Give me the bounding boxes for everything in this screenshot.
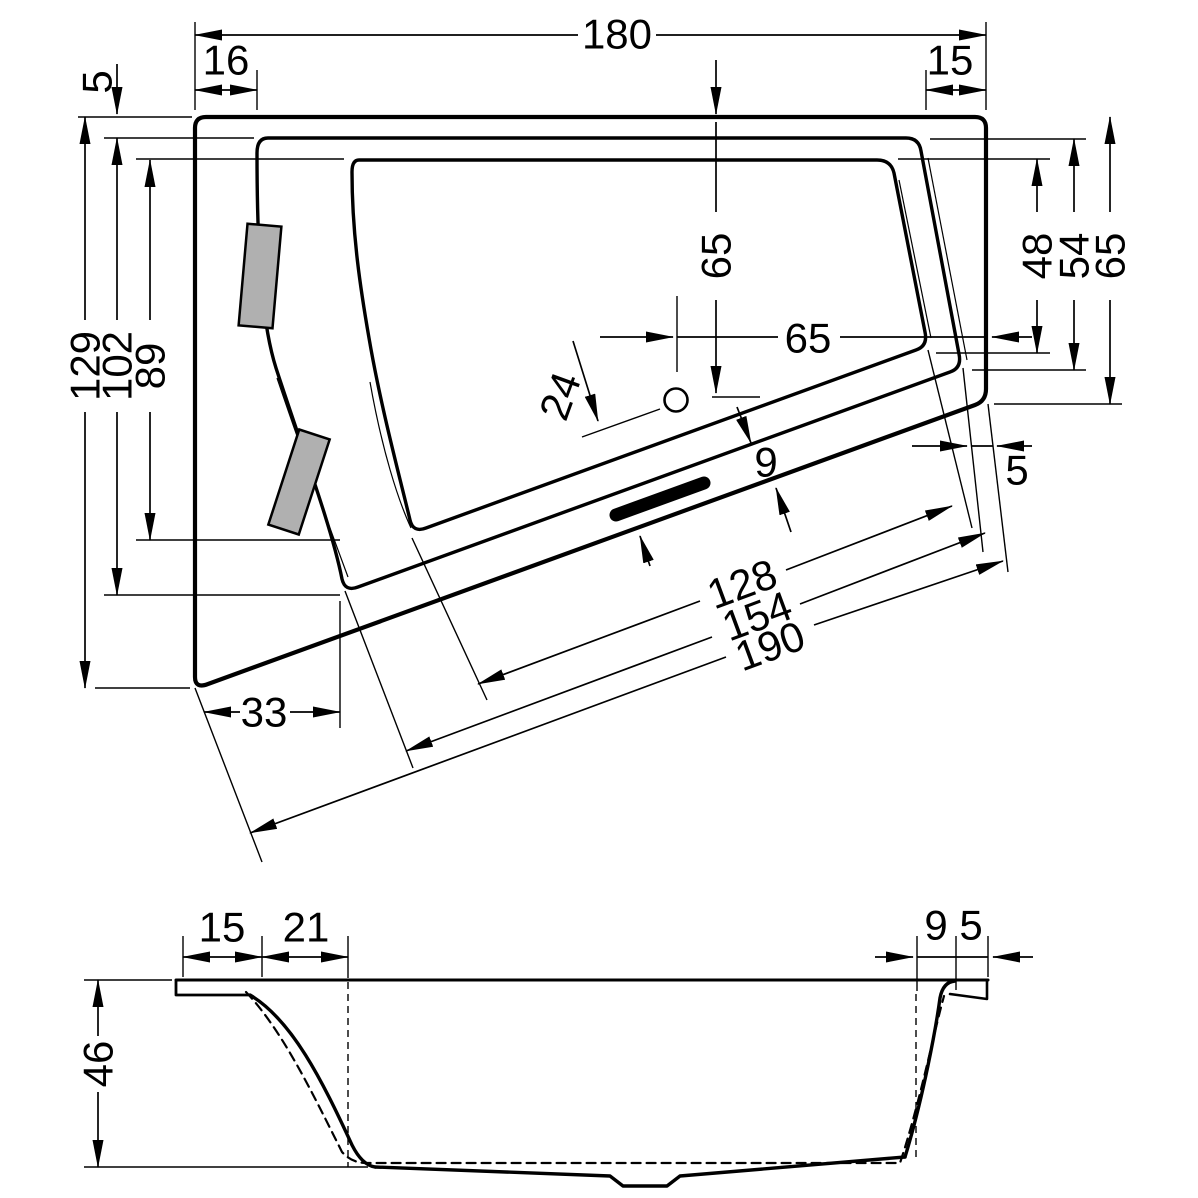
section-left-rim (176, 981, 250, 995)
section-bottom (375, 1157, 905, 1186)
dim-label-section-slope-left: 21 (283, 904, 330, 951)
dim-label-section-rim-right-inner: 9 (924, 902, 947, 949)
plan-extension-lines (78, 22, 1122, 862)
dim-label-drain-from-right: 65 (785, 315, 832, 362)
plan-dimension-labels: 180 16 15 5 129 102 89 65 65 24 48 54 65… (62, 11, 1134, 736)
dim-label-drain-to-front: 24 (530, 366, 590, 426)
dim-label-rim-gap-top-left: 5 (74, 70, 121, 93)
plan-view: 180 16 15 5 129 102 89 65 65 24 48 54 65… (62, 11, 1134, 863)
dim-label-rim-offset-right: 15 (927, 37, 974, 84)
dim-label-section-depth: 46 (75, 1041, 122, 1088)
tub-basin-outline (352, 160, 926, 529)
section-extension-lines (84, 936, 988, 1167)
bathtub-technical-drawing: 180 16 15 5 129 102 89 65 65 24 48 54 65… (0, 0, 1198, 1198)
plan-dimension-lines (85, 35, 1110, 833)
dim-label-rim-offset-left: 16 (203, 37, 250, 84)
dim-label-basin-length: 89 (127, 343, 174, 390)
tub-rim-inner-outline (257, 138, 960, 588)
section-right-wall (905, 981, 955, 1157)
section-dimension-lines (98, 957, 1033, 1167)
dim-label-front-rim-width: 9 (754, 439, 777, 486)
headrest-top (239, 224, 282, 329)
section-profile (176, 980, 988, 1186)
dim-label-section-rim-right-outer: 5 (959, 902, 982, 949)
dim-label-overall-width: 180 (582, 11, 652, 58)
section-view: 15 21 9 5 46 (75, 902, 1034, 1187)
dim-label-front-right-rim: 5 (1005, 447, 1028, 494)
section-inner-profile-dashed (246, 992, 944, 1163)
dim-label-section-rim-left: 15 (199, 904, 246, 951)
drain-circle (665, 389, 688, 412)
dim-label-right-overall-depth: 65 (1087, 233, 1134, 280)
dim-label-drain-from-top: 65 (693, 233, 740, 280)
drawing-canvas: 180 16 15 5 129 102 89 65 65 24 48 54 65… (0, 0, 1198, 1198)
dim-label-bottom-left-offset: 33 (241, 689, 288, 736)
headrest-bottom (268, 430, 329, 535)
